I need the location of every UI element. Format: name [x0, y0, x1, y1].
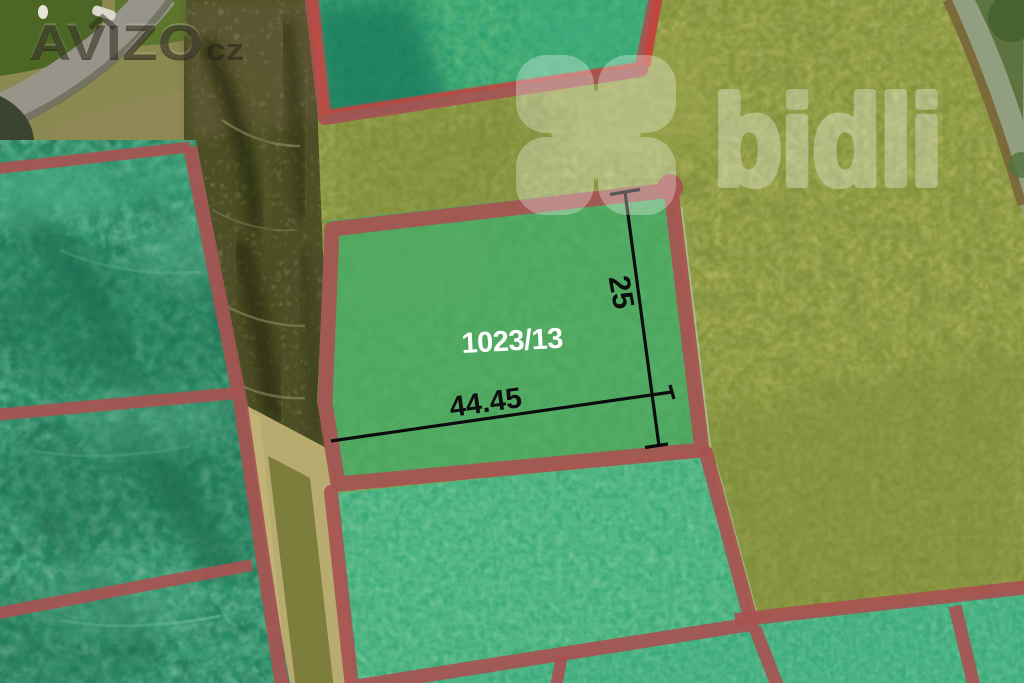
svg-text:AVIZO: AVIZO — [29, 15, 203, 71]
svg-text:1023/13: 1023/13 — [461, 323, 564, 360]
svg-text:cz: cz — [206, 32, 244, 67]
svg-text:25: 25 — [602, 273, 640, 312]
svg-text:bidli: bidli — [714, 72, 942, 211]
